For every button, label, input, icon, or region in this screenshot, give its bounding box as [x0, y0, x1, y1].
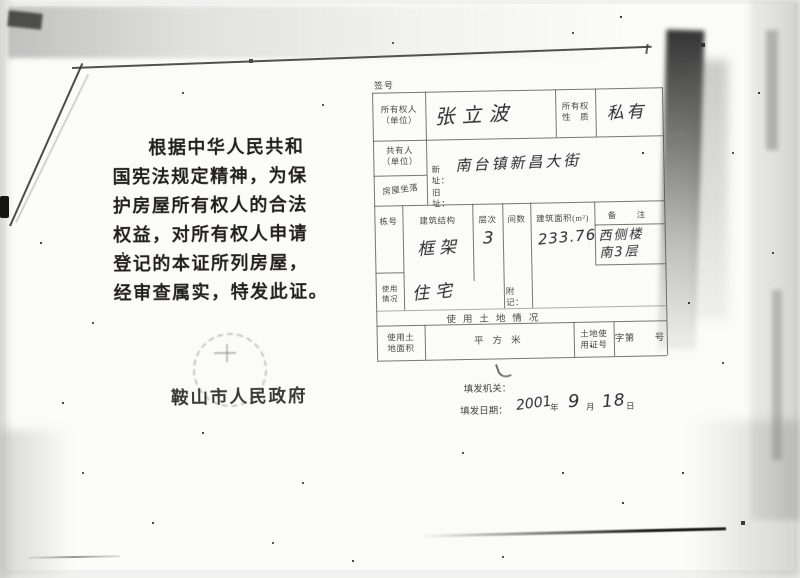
floors-header: 层次: [473, 214, 501, 226]
grid-line: [595, 263, 665, 265]
ownership-nature-value: 私有: [606, 97, 647, 124]
land-area-unit: 平方米: [437, 335, 567, 348]
handwritten-mark: [495, 361, 512, 380]
owner-name-value: 张立波: [434, 97, 516, 130]
grid-line: [377, 355, 667, 362]
issue-year-unit: 年: [550, 401, 559, 413]
seal-inner-mark: [226, 344, 228, 362]
new-address-value: 南台镇新昌大街: [455, 149, 582, 176]
usage-label: 使用 情况: [378, 284, 402, 304]
old-address-label: 旧址：: [432, 187, 458, 209]
scan-speckles: [0, 0, 2, 2]
structure-header: 建筑结构: [404, 215, 470, 227]
seal-inner-mark: [214, 352, 236, 354]
grid-line: [375, 272, 403, 274]
grid-line: [424, 325, 426, 360]
building-no-header: 栋号: [375, 216, 401, 227]
grid-line: [374, 200, 664, 207]
issue-year-value: 2001: [515, 394, 552, 414]
issue-month-unit: 月: [586, 401, 595, 413]
owner-label: 所有权人 （单位）: [374, 104, 423, 127]
issue-day-unit: 日: [626, 400, 635, 412]
usage-value: 住宅: [411, 276, 459, 305]
rooms-header: 间数: [503, 214, 529, 225]
grid-line: [374, 175, 427, 177]
floors-value: 3: [483, 228, 494, 248]
co-owner-label: 共有人 （单位）: [375, 145, 424, 168]
location-label: 房屋坐落: [375, 181, 425, 198]
declaration-line: 护房屋所有权人的合法: [113, 190, 383, 221]
issue-month-value: 9: [568, 391, 580, 412]
declaration-line: 根据中华人民共和: [112, 132, 382, 163]
annex-label: 附记：: [506, 286, 532, 308]
new-address-label: 新址：: [431, 164, 457, 186]
registration-form: 签号 所有权人 （单位） 张立波 所有权 性 质 私有 共有人 （单位） 房屋坐…: [372, 87, 670, 428]
grid-line: [595, 223, 665, 225]
grid-line: [373, 135, 663, 142]
land-cert-no-label: 土地使 用证号: [575, 328, 613, 351]
scanned-certificate-page: 根据中华人民共和 国宪法规定精神，为保 护房屋所有权人的合法 权益，对所有权人申…: [0, 0, 800, 578]
remark-header: 备 注: [595, 209, 663, 221]
issue-day-value: 18: [601, 390, 626, 412]
land-cert-no-value: 字第 号: [615, 333, 665, 345]
land-use-section-title: 使用土地情况: [446, 310, 545, 326]
declaration-line: 登记的本证所列房屋，: [113, 248, 383, 279]
ownership-nature-label: 所有权 性 质: [556, 101, 594, 124]
grid-line: [595, 89, 597, 137]
floor-area-header: 建筑面积(m²): [531, 213, 593, 225]
land-area-label: 使用土 地面积: [379, 332, 423, 355]
issuing-organ-label: 填发机关：: [464, 380, 512, 395]
serial-number-label: 签号: [374, 78, 394, 91]
declaration-line: 国宪法规定精神，为保: [112, 161, 382, 192]
declaration-line: 经审查属实，特发此证。: [114, 277, 384, 308]
structure-value: 框架: [416, 232, 462, 260]
floor-area-value: 233.76: [537, 226, 597, 249]
certificate-declaration: 根据中华人民共和 国宪法规定精神，为保 护房屋所有权人的合法 权益，对所有权人申…: [112, 132, 384, 308]
declaration-line: 权益，对所有权人申请: [113, 219, 383, 250]
issue-date-label: 填发日期：: [460, 402, 508, 417]
issuing-authority: 鞍山市人民政府: [171, 381, 381, 410]
grid-line: [425, 92, 428, 205]
remark-value: 西侧楼 南3层: [598, 226, 645, 262]
